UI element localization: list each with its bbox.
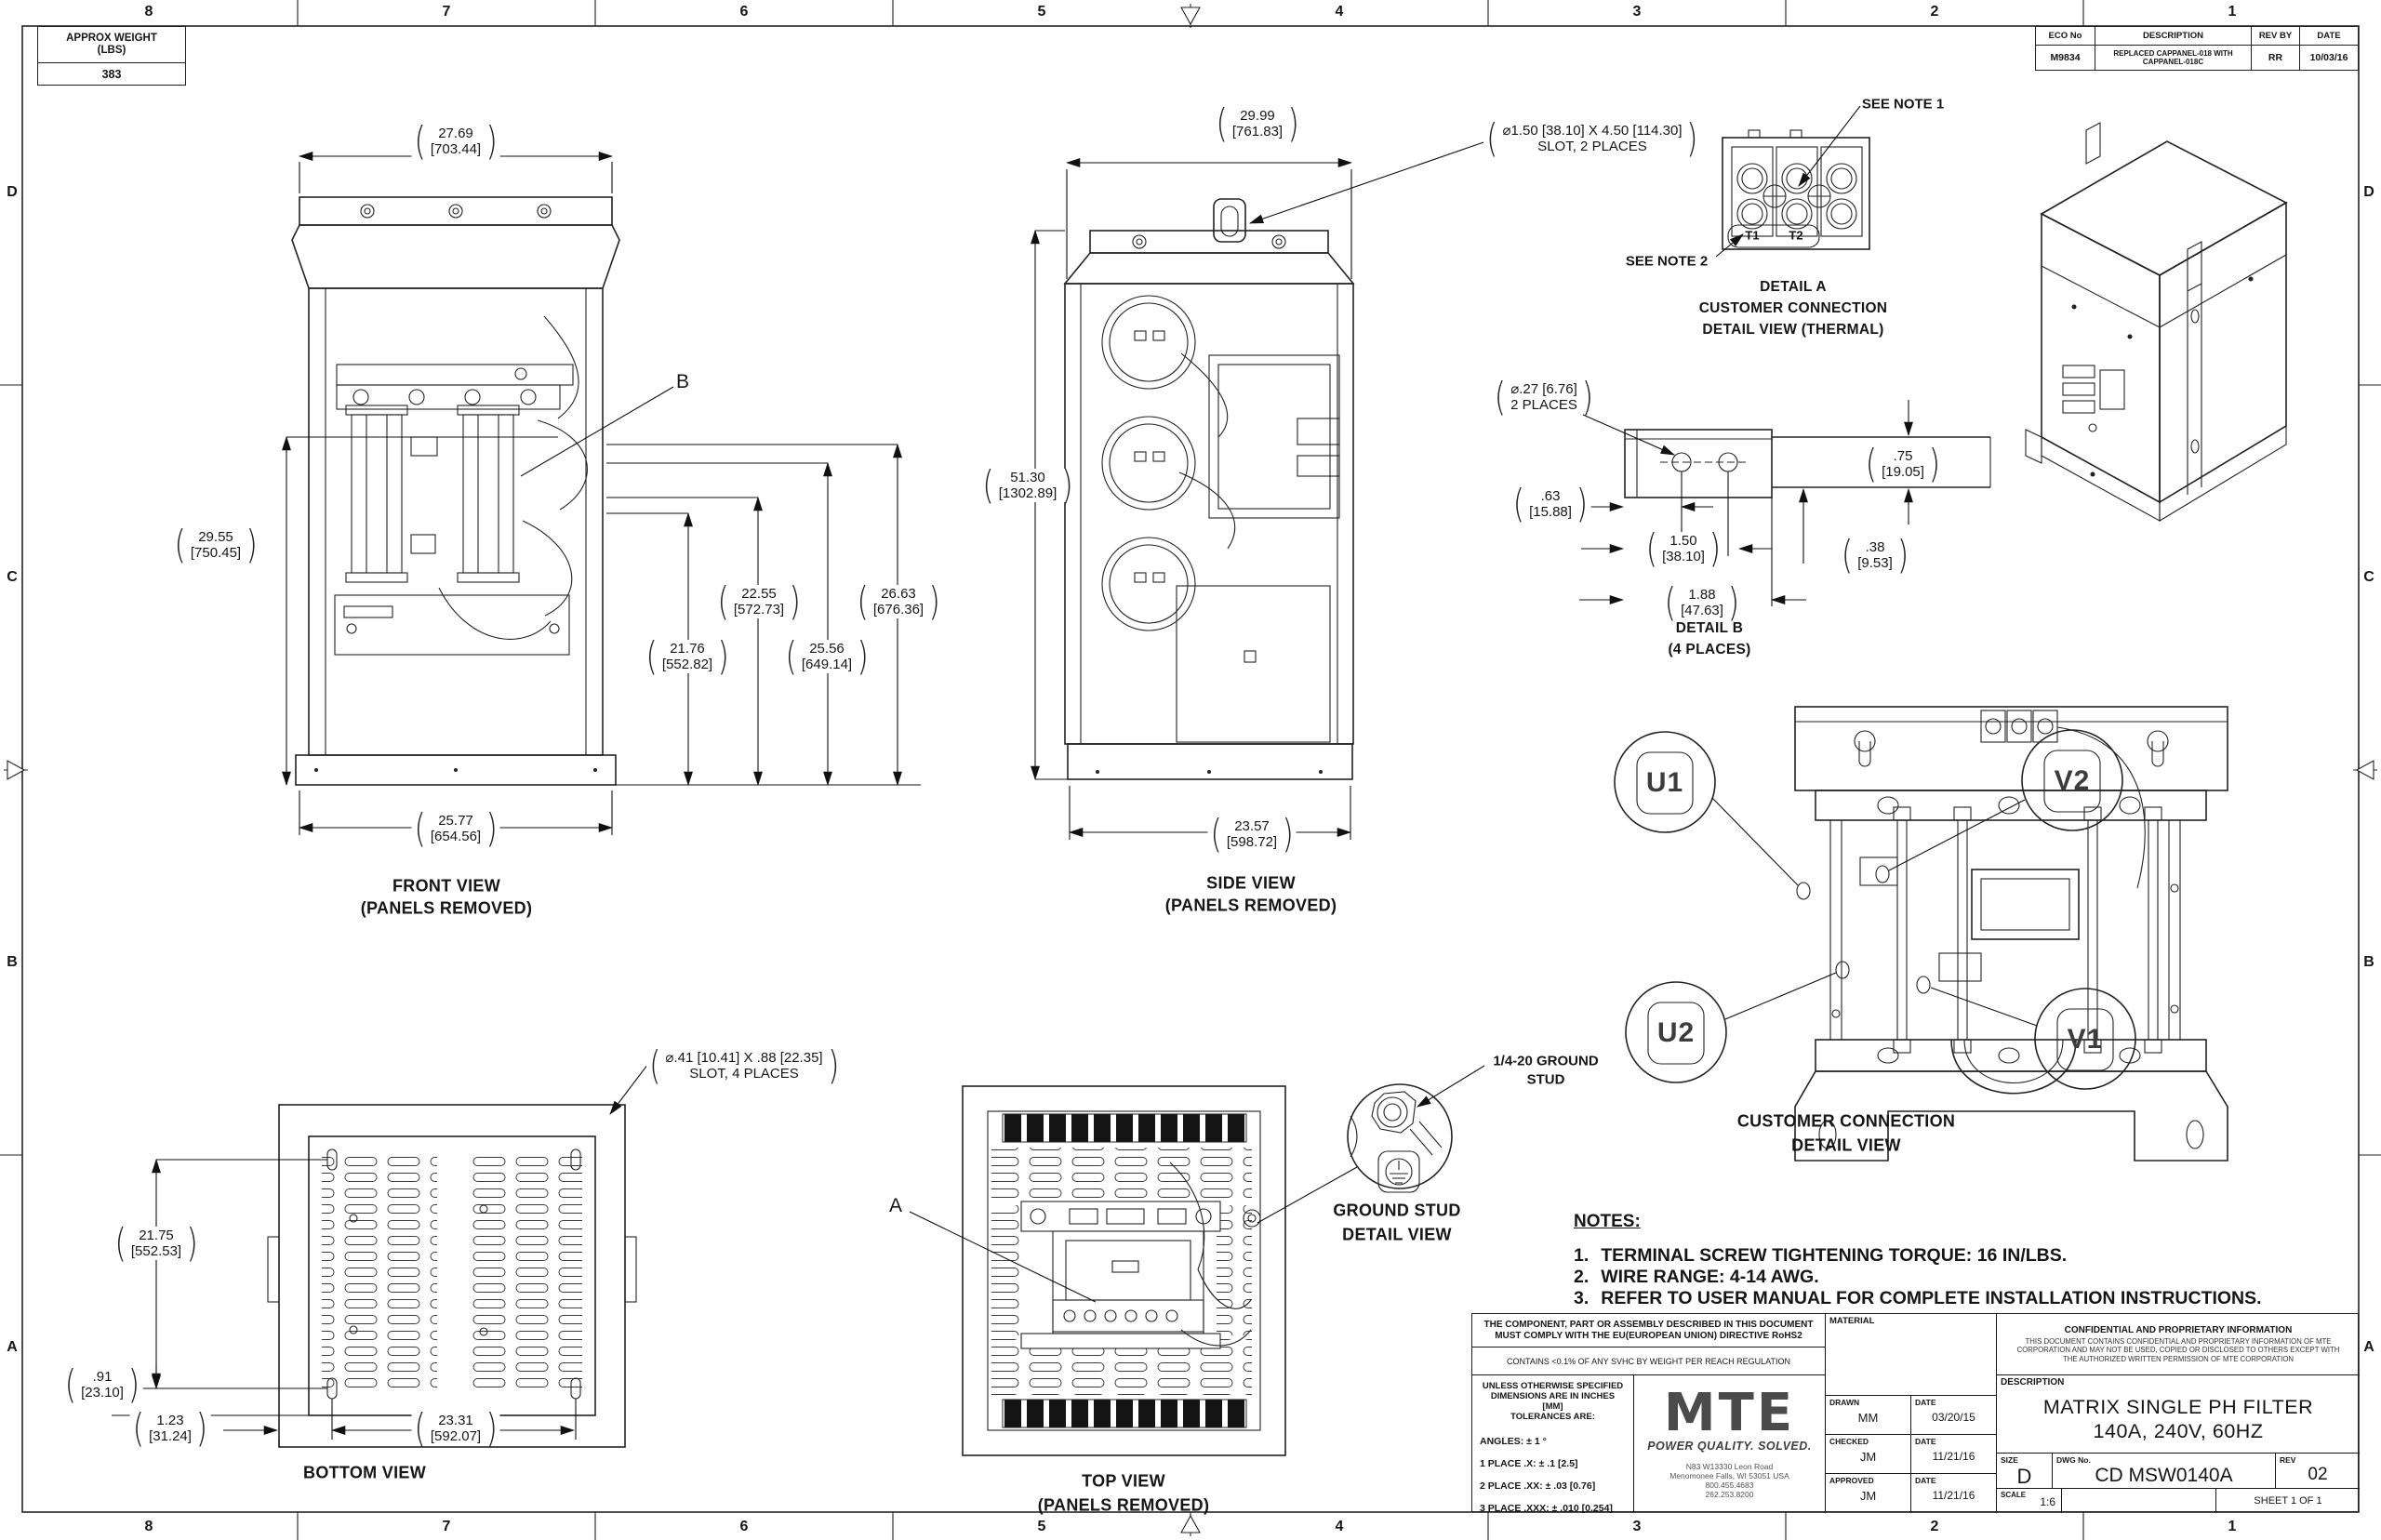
zone-col: 4 [1336,4,1344,20]
side-dim-height: (51.30[1302.89]) [979,469,1075,502]
zone-col: 1 [2228,4,2237,20]
mte-tagline: POWER QUALITY. SOLVED. [1647,1440,1812,1453]
note-item: 3.REFER TO USER MANUAL FOR COMPLETE INST… [1574,1288,2262,1309]
bottom-view-caption: BOTTOM VIEW [303,1464,426,1483]
material-cell: MATERIAL [1826,1314,1997,1396]
scale-cell: SCALE1:6 [1997,1489,2062,1513]
side-dim-base: (23.57[598.72]) [1208,817,1297,851]
see-note-2-label: SEE NOTE 2 [1626,254,1708,270]
detail-b-drawing [1579,400,1990,606]
detail-b-hole-callout: (⌀.27 [6.76]2 PLACES) [1492,380,1597,414]
tolerance-header: UNLESS OTHERWISE SPECIFIED DIMENSIONS AR… [1480,1381,1626,1422]
approx-weight-title: APPROX WEIGHT(LBS) [38,27,185,63]
zone-row: B [2363,954,2374,971]
mte-address: N83 W13330 Leon Road Menomonee Falls, WI… [1669,1462,1789,1499]
rohs-statement: THE COMPONENT, PART OR ASSEMBLY DESCRIBE… [1472,1314,1826,1347]
eco-header: DESCRIPTION [2095,27,2252,46]
detail-b-dim-length: (1.88[47.63]) [1662,586,1743,619]
eco-rev-by: RR [2252,46,2300,70]
title-block: THE COMPONENT, PART OR ASSEMBLY DESCRIBE… [1471,1313,2359,1512]
zone-row: C [7,569,18,586]
front-dim-t4: (25.56[649.14]) [783,640,871,673]
zone-col: 7 [443,4,451,20]
checked-date-cell: DATE11/21/16 [1911,1435,1997,1474]
balloon-v1: V1 [2068,1024,2104,1055]
note-item: 1.TERMINAL SCREW TIGHTENING TORQUE: 16 I… [1574,1245,2262,1267]
bottom-slot-callout: (⌀.41 [10.41] X .88 [22.35]SLOT, 4 PLACE… [646,1049,842,1082]
zone-col: 3 [1633,1519,1642,1535]
front-view-drawing [286,156,921,835]
zone-col: 6 [740,1519,749,1535]
top-view-drawing [910,1086,1285,1455]
rev-cell: REV02 [2276,1454,2360,1489]
zone-col: 2 [1931,4,1939,20]
reach-statement: CONTAINS <0.1% OF ANY SVHC BY WEIGHT PER… [1472,1347,1826,1375]
mte-logo-block: MTE POWER QUALITY. SOLVED. N83 W13330 Le… [1634,1375,1826,1513]
terminal-t1-label: T1 [1745,229,1759,243]
side-slot-callout: (⌀1.50 [38.10] X 4.50 [114.30]SLOT, 2 PL… [1483,122,1701,155]
checked-cell: CHECKEDJM [1826,1435,1911,1474]
zone-row: C [2363,569,2374,586]
approved-cell: APPROVEDJM [1826,1474,1911,1513]
sheet-cell: SHEET 1 OF 1 [2216,1489,2360,1513]
zone-col: 2 [1931,1519,1939,1535]
front-dim-t2: (21.76[552.82]) [644,640,732,673]
detail-b-caption2: (4 PLACES) [1668,642,1750,658]
front-dim-height: (29.55[750.45]) [172,528,260,562]
bottom-dim-offset-v: (.91[23.10]) [62,1368,143,1401]
eco-header: ECO No [2036,27,2095,46]
eco-revision-table: ECO No DESCRIPTION REV BY DATE M9834 REP… [2035,26,2359,71]
eco-description: REPLACED CAPPANEL-018 WITH CAPPANEL-018C [2095,46,2252,70]
tolerance-block: UNLESS OTHERWISE SPECIFIED DIMENSIONS AR… [1472,1375,1634,1513]
ground-stud-drawing [1257,1066,1484,1223]
zone-row: B [7,954,18,971]
ground-stud-caption2: DETAIL VIEW [1342,1226,1452,1245]
tolerance-values: ANGLES: ± 1 ° 1 PLACE .X: ± .1 [2.5] 2 P… [1480,1430,1626,1520]
drawn-cell: DRAWNMM [1826,1396,1911,1435]
eco-number: M9834 [2036,46,2095,70]
detail-b-dim-lip: (.63[15.88]) [1510,487,1591,521]
mte-logo: MTE [1664,1389,1795,1438]
eco-header: REV BY [2252,27,2300,46]
front-balloon-b: B [676,371,689,393]
detail-b-dim-spacing: (1.50[38.10]) [1643,532,1724,565]
customer-connection-drawing [1615,707,2228,1161]
customer-connection-caption: CUSTOMER CONNECTION [1737,1112,1955,1132]
front-dim-t3: (26.63[676.36]) [855,585,943,618]
drawing-sheet: 8 7 6 5 4 3 2 1 8 7 6 5 4 3 2 1 D C B A … [0,0,2381,1540]
detail-b-dim-offset: (.38[9.53]) [1839,538,1911,572]
top-balloon-a: A [889,1195,902,1217]
confidential-cell: CONFIDENTIAL AND PROPRIETARY INFORMATION… [1997,1314,2360,1375]
dwg-no-cell: DWG No.CD MSW0140A [2053,1454,2276,1489]
detail-b-dim-bar: (.75[19.05]) [1863,447,1944,481]
balloon-u1: U1 [1646,767,1683,799]
front-view-caption2: (PANELS REMOVED) [361,899,532,919]
detail-a-caption2: CUSTOMER CONNECTION [1699,300,1888,317]
description-cell: DESCRIPTION MATRIX SINGLE PH FILTER 140A… [1997,1375,2360,1454]
isometric-view-drawing [2026,123,2286,521]
zone-col: 5 [1038,4,1046,20]
zone-col: 5 [1038,1519,1046,1535]
side-view-drawing [1035,141,1486,840]
zone-col: 8 [145,1519,153,1535]
zone-col: 1 [2228,1519,2237,1535]
balloon-u2: U2 [1657,1017,1695,1049]
zone-col: 7 [443,1519,451,1535]
detail-b-caption: DETAIL B [1676,620,1743,637]
zone-col: 4 [1336,1519,1344,1535]
size-cell: SIZED [1997,1454,2053,1489]
ground-stud-callout: 1/4-20 GROUND [1493,1054,1598,1069]
scale-spacer-cell [2062,1489,2216,1513]
zone-row: D [2363,184,2374,201]
approved-date-cell: DATE11/21/16 [1911,1474,1997,1513]
side-dim-width: (29.99[761.83]) [1214,107,1302,140]
front-dim-t1: (22.55[572.73]) [715,585,804,618]
see-note-1-label: SEE NOTE 1 [1862,97,1944,113]
note-item: 2.WIRE RANGE: 4-14 AWG. [1574,1267,2262,1288]
top-view-caption2: (PANELS REMOVED) [1038,1496,1209,1516]
front-dim-width: (27.69[703.44]) [412,125,500,158]
balloon-v2: V2 [2055,765,2091,797]
drawn-date-cell: DATE03/20/15 [1911,1396,1997,1435]
zone-col: 6 [740,4,749,20]
zone-row: D [7,184,18,201]
notes-section: NOTES: 1.TERMINAL SCREW TIGHTENING TORQU… [1574,1212,2262,1309]
zone-row: A [7,1339,18,1356]
side-view-caption: SIDE VIEW [1206,874,1296,894]
bottom-dim-offset-h: (1.23[31.24]) [130,1412,211,1445]
detail-a-caption3: DETAIL VIEW (THERMAL) [1702,322,1883,339]
eco-header: DATE [2300,27,2358,46]
zone-row: A [2363,1339,2374,1356]
ground-stud-caption: GROUND STUD [1333,1201,1460,1221]
detail-a-caption: DETAIL A [1760,279,1827,296]
bottom-dim-height: (21.75[552.53]) [113,1227,201,1260]
approx-weight-value: 383 [38,63,185,86]
side-view-caption2: (PANELS REMOVED) [1165,896,1337,916]
zone-col: 8 [145,4,153,20]
eco-date: 10/03/16 [2300,46,2358,70]
front-dim-base: (25.77[654.56]) [412,812,500,845]
zone-col: 3 [1633,4,1642,20]
front-view-caption: FRONT VIEW [392,877,500,896]
top-view-caption: TOP VIEW [1082,1472,1165,1492]
bottom-dim-width: (23.31[592.07]) [412,1412,500,1445]
notes-heading: NOTES: [1574,1212,2262,1232]
approx-weight-box: APPROX WEIGHT(LBS) 383 [37,26,186,86]
terminal-t2-label: T2 [1789,229,1802,243]
customer-connection-caption2: DETAIL VIEW [1791,1136,1901,1156]
ground-stud-callout2: STUD [1527,1072,1565,1088]
